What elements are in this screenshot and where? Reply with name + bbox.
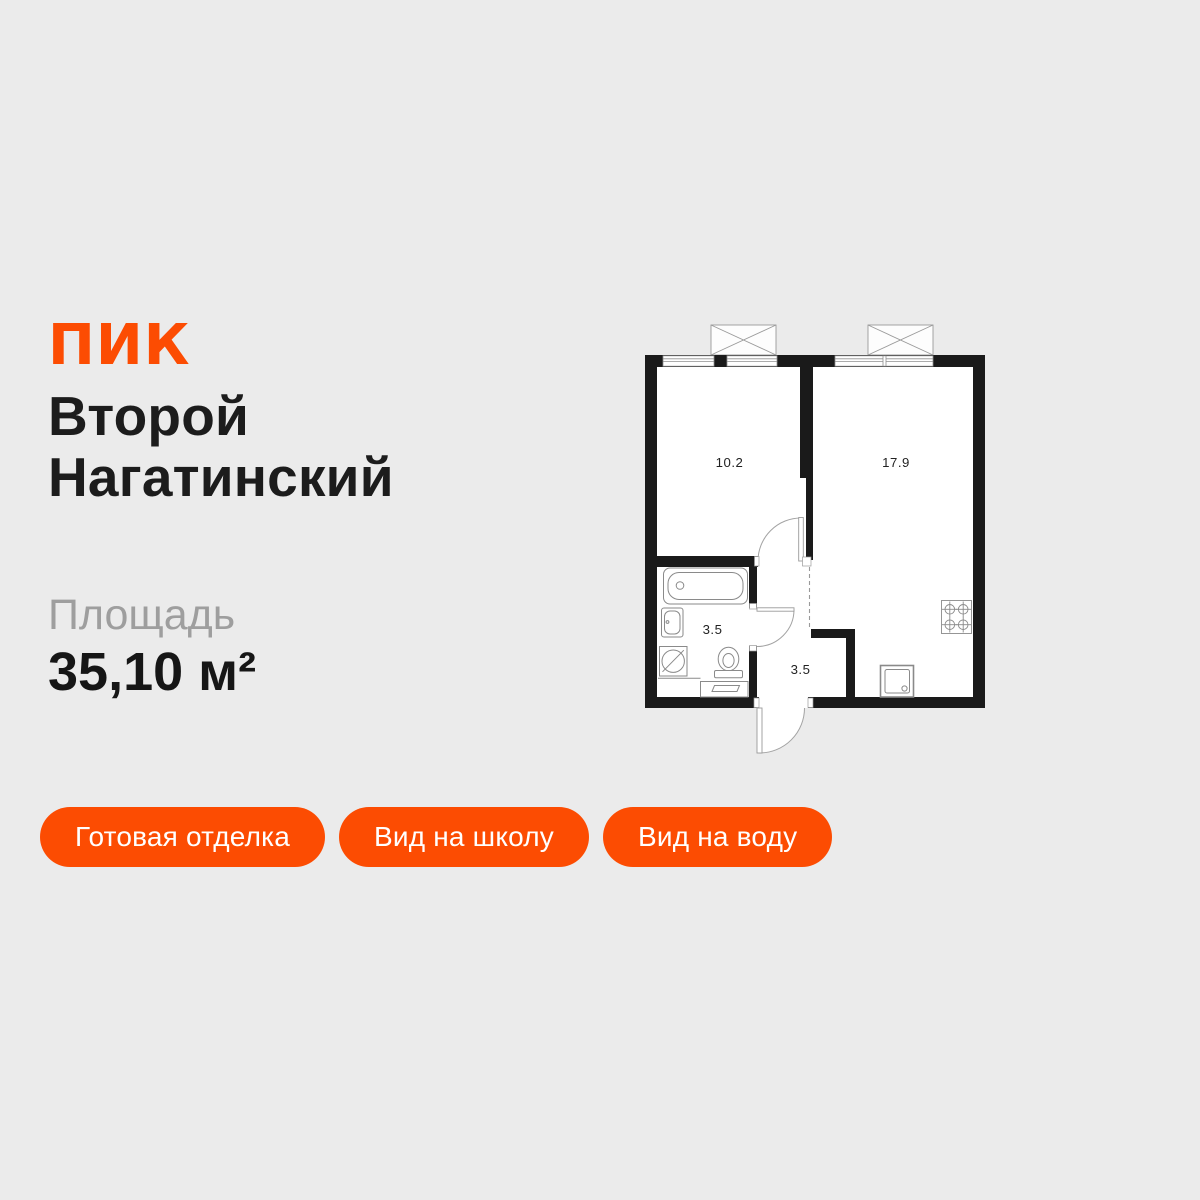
window-icon <box>727 356 777 366</box>
floorplan-image: 10.2 17.9 3.5 3.5 <box>640 318 990 760</box>
door-arc-icon <box>757 708 805 753</box>
sink-icon <box>662 608 684 637</box>
entrance-opening <box>759 697 808 708</box>
area-value: 35,10 м² <box>48 643 256 702</box>
ac-unit-icon <box>711 325 776 355</box>
tag-school-view[interactable]: Вид на школу <box>339 807 589 867</box>
ac-unit-icon <box>868 325 933 355</box>
tag-label: Готовая отделка <box>75 821 290 853</box>
room-area-label-bedroom: 10.2 <box>716 455 744 470</box>
window-icon <box>835 356 933 366</box>
tag-water-view[interactable]: Вид на воду <box>603 807 832 867</box>
pik-logo: ПИК <box>48 318 191 374</box>
project-title: Второй Нагатинский <box>48 386 518 508</box>
plan-background <box>645 355 985 708</box>
area-label: Площадь <box>48 592 235 639</box>
room-area-label-hallway: 3.5 <box>791 662 811 677</box>
tag-label: Вид на воду <box>638 821 797 853</box>
window-icon <box>663 356 714 366</box>
stove-icon <box>942 601 972 634</box>
listing-card: ПИК Второй Нагатинский Площадь 35,10 м² … <box>0 0 1200 1200</box>
kitchen-sink-icon <box>881 666 914 698</box>
room-area-label-living-kitchen: 17.9 <box>882 455 910 470</box>
bathtub-icon <box>664 568 748 604</box>
tag-ready-finish[interactable]: Готовая отделка <box>40 807 325 867</box>
room-area-label-bathroom: 3.5 <box>703 622 723 637</box>
tag-list: Готовая отделка Вид на школу Вид на воду <box>40 807 832 867</box>
washing-machine-icon <box>660 647 688 677</box>
tag-label: Вид на школу <box>374 821 554 853</box>
